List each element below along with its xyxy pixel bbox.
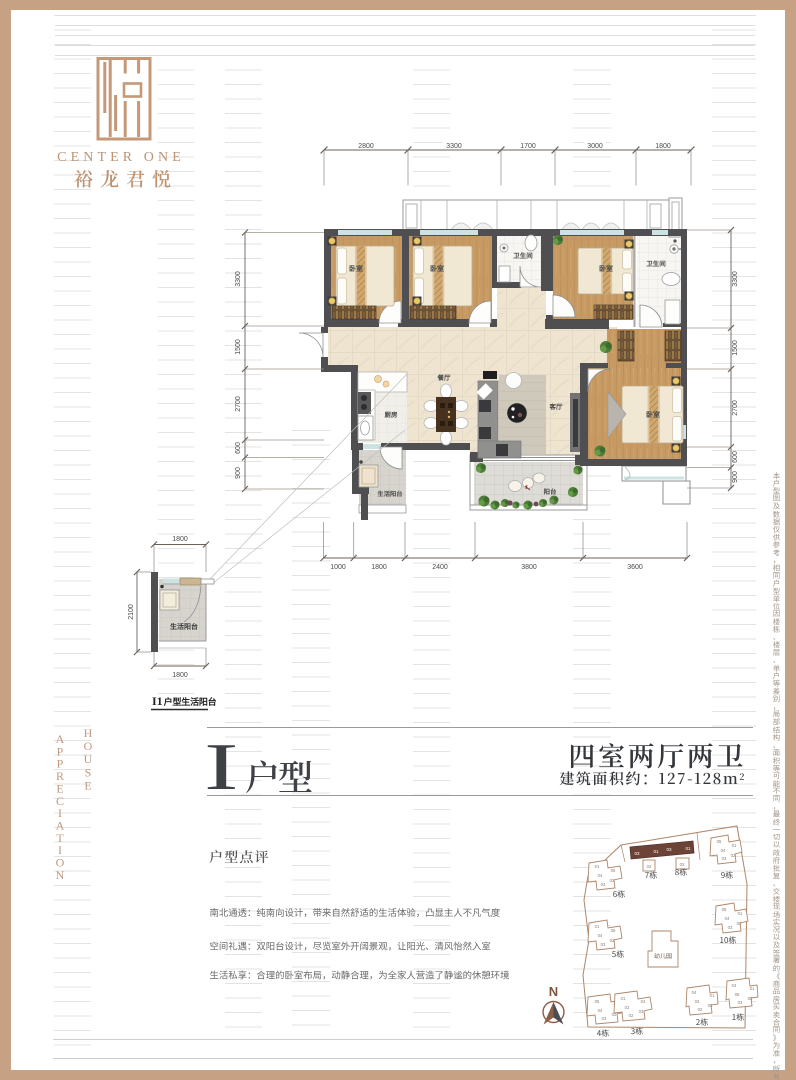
svg-text:02: 02 xyxy=(698,1007,703,1012)
svg-text:04: 04 xyxy=(641,999,646,1004)
svg-text:01: 01 xyxy=(750,986,755,991)
svg-text:生活私享：合理的卧室布局，动静合理，为全家人营造了静谧的休憩: 生活私享：合理的卧室布局，动静合理，为全家人营造了静谧的休憩环境 xyxy=(210,968,510,982)
svg-text:02: 02 xyxy=(625,1005,630,1010)
svg-text:1800: 1800 xyxy=(655,143,671,150)
svg-text:户型点评: 户型点评 xyxy=(209,847,270,867)
svg-text:03: 03 xyxy=(722,856,727,861)
svg-text:卧室: 卧室 xyxy=(349,264,363,274)
svg-text:空间礼遇：双阳台设计，尽览室外开阔景观，让阳光、清风怡然入室: 空间礼遇：双阳台设计，尽览室外开阔景观，让阳光、清风怡然入室 xyxy=(210,939,491,953)
svg-text:01: 01 xyxy=(732,843,737,848)
svg-text:1000: 1000 xyxy=(330,564,346,571)
svg-text:03: 03 xyxy=(639,1009,644,1014)
svg-text:03: 03 xyxy=(728,925,733,930)
svg-text:05: 05 xyxy=(611,868,616,873)
svg-text:05: 05 xyxy=(611,928,616,933)
svg-text:3300: 3300 xyxy=(732,271,739,287)
svg-text:卫生间: 卫生间 xyxy=(646,258,666,268)
svg-text:04: 04 xyxy=(598,933,603,938)
svg-text:1500: 1500 xyxy=(235,339,242,355)
svg-text:03: 03 xyxy=(601,942,606,947)
svg-text:03: 03 xyxy=(601,882,606,887)
svg-text:1栋: 1栋 xyxy=(732,1012,744,1023)
svg-text:05: 05 xyxy=(722,907,727,912)
svg-text:04: 04 xyxy=(725,916,730,921)
svg-text:APPRECIATION: APPRECIATION xyxy=(56,732,65,882)
svg-text:02: 02 xyxy=(748,996,753,1001)
svg-text:03: 03 xyxy=(634,851,640,856)
svg-text:9栋: 9栋 xyxy=(721,870,733,881)
svg-text:01: 01 xyxy=(685,846,691,851)
svg-text:本户型图及数据仅供参考，相同户型单位因楼栋、楼层、单户等差别: 本户型图及数据仅供参考，相同户型单位因楼栋、楼层、单户等差别，局部结构、面积等可… xyxy=(771,471,782,1080)
svg-text:3300: 3300 xyxy=(235,271,242,287)
svg-text:I: I xyxy=(204,729,239,803)
svg-text:卧室: 卧室 xyxy=(646,410,660,420)
svg-text:2700: 2700 xyxy=(235,396,242,412)
svg-text:厨房: 厨房 xyxy=(385,409,399,419)
svg-text:02: 02 xyxy=(610,878,615,883)
svg-text:生活阳台: 生活阳台 xyxy=(170,622,198,632)
svg-text:2700: 2700 xyxy=(732,400,739,416)
svg-text:03: 03 xyxy=(738,1000,743,1005)
svg-text:04: 04 xyxy=(692,990,697,995)
svg-text:01: 01 xyxy=(595,924,600,929)
svg-text:02: 02 xyxy=(737,921,742,926)
svg-text:3800: 3800 xyxy=(521,564,537,571)
svg-text:裕龙君悦: 裕龙君悦 xyxy=(74,165,178,192)
svg-text:5栋: 5栋 xyxy=(612,949,624,960)
svg-text:I1户型生活阳台: I1户型生活阳台 xyxy=(152,694,217,708)
svg-text:04: 04 xyxy=(598,1008,603,1013)
svg-text:CENTER ONE: CENTER ONE xyxy=(57,150,185,165)
svg-text:03: 03 xyxy=(666,847,672,852)
svg-text:600: 600 xyxy=(235,442,242,454)
svg-text:生活阳台: 生活阳台 xyxy=(377,489,403,498)
svg-text:4栋: 4栋 xyxy=(597,1028,609,1039)
svg-text:04: 04 xyxy=(598,873,603,878)
svg-text:卧室: 卧室 xyxy=(599,264,613,274)
svg-text:幼儿园: 幼儿园 xyxy=(654,951,672,960)
svg-text:03: 03 xyxy=(602,1016,607,1021)
svg-text:阳台: 阳台 xyxy=(544,486,558,496)
svg-text:04: 04 xyxy=(721,848,726,853)
svg-text:1800: 1800 xyxy=(371,564,387,571)
svg-text:HOUSE: HOUSE xyxy=(84,726,93,792)
svg-text:10栋: 10栋 xyxy=(720,935,737,946)
svg-text:户型: 户型 xyxy=(245,751,312,801)
svg-text:02: 02 xyxy=(629,1013,634,1018)
svg-text:01: 01 xyxy=(738,911,743,916)
svg-text:餐厅: 餐厅 xyxy=(437,372,452,382)
svg-text:01: 01 xyxy=(710,993,715,998)
svg-text:客厅: 客厅 xyxy=(550,401,564,411)
svg-text:卫生间: 卫生间 xyxy=(513,250,533,260)
svg-text:02: 02 xyxy=(731,853,736,858)
svg-text:900: 900 xyxy=(235,467,242,479)
svg-text:01: 01 xyxy=(595,864,600,869)
svg-text:2栋: 2栋 xyxy=(696,1017,708,1028)
svg-text:600: 600 xyxy=(732,451,739,463)
svg-text:05: 05 xyxy=(735,992,740,997)
svg-text:03: 03 xyxy=(695,999,700,1004)
svg-text:1800: 1800 xyxy=(172,536,188,543)
svg-text:3300: 3300 xyxy=(446,143,462,150)
svg-text:1800: 1800 xyxy=(172,672,188,679)
svg-text:卧室: 卧室 xyxy=(430,264,444,274)
svg-text:3栋: 3栋 xyxy=(631,1026,643,1037)
svg-text:2800: 2800 xyxy=(358,143,374,150)
svg-text:05: 05 xyxy=(595,999,600,1004)
svg-text:7栋: 7栋 xyxy=(645,870,657,881)
svg-text:1700: 1700 xyxy=(520,143,536,150)
svg-text:05: 05 xyxy=(717,839,722,844)
svg-text:04: 04 xyxy=(732,983,737,988)
svg-text:900: 900 xyxy=(732,471,739,483)
svg-text:南北通透：纯南向设计，带来自然舒适的生活体验，凸显主人不凡气: 南北通透：纯南向设计，带来自然舒适的生活体验，凸显主人不凡气度 xyxy=(210,905,501,919)
svg-text:02: 02 xyxy=(708,1003,713,1008)
svg-text:N: N xyxy=(549,984,558,999)
svg-text:建筑面积约：127-128m2: 建筑面积约：127-128m2 xyxy=(559,768,746,789)
svg-text:3600: 3600 xyxy=(627,564,643,571)
svg-text:02: 02 xyxy=(610,938,615,943)
svg-text:2400: 2400 xyxy=(432,564,448,571)
svg-text:01: 01 xyxy=(621,996,626,1001)
svg-text:6栋: 6栋 xyxy=(613,889,625,900)
svg-text:2100: 2100 xyxy=(128,604,135,620)
svg-text:3000: 3000 xyxy=(587,143,603,150)
svg-text:1500: 1500 xyxy=(732,340,739,356)
svg-text:8栋: 8栋 xyxy=(675,867,687,878)
svg-text:02: 02 xyxy=(647,864,652,869)
svg-text:01: 01 xyxy=(653,849,659,854)
